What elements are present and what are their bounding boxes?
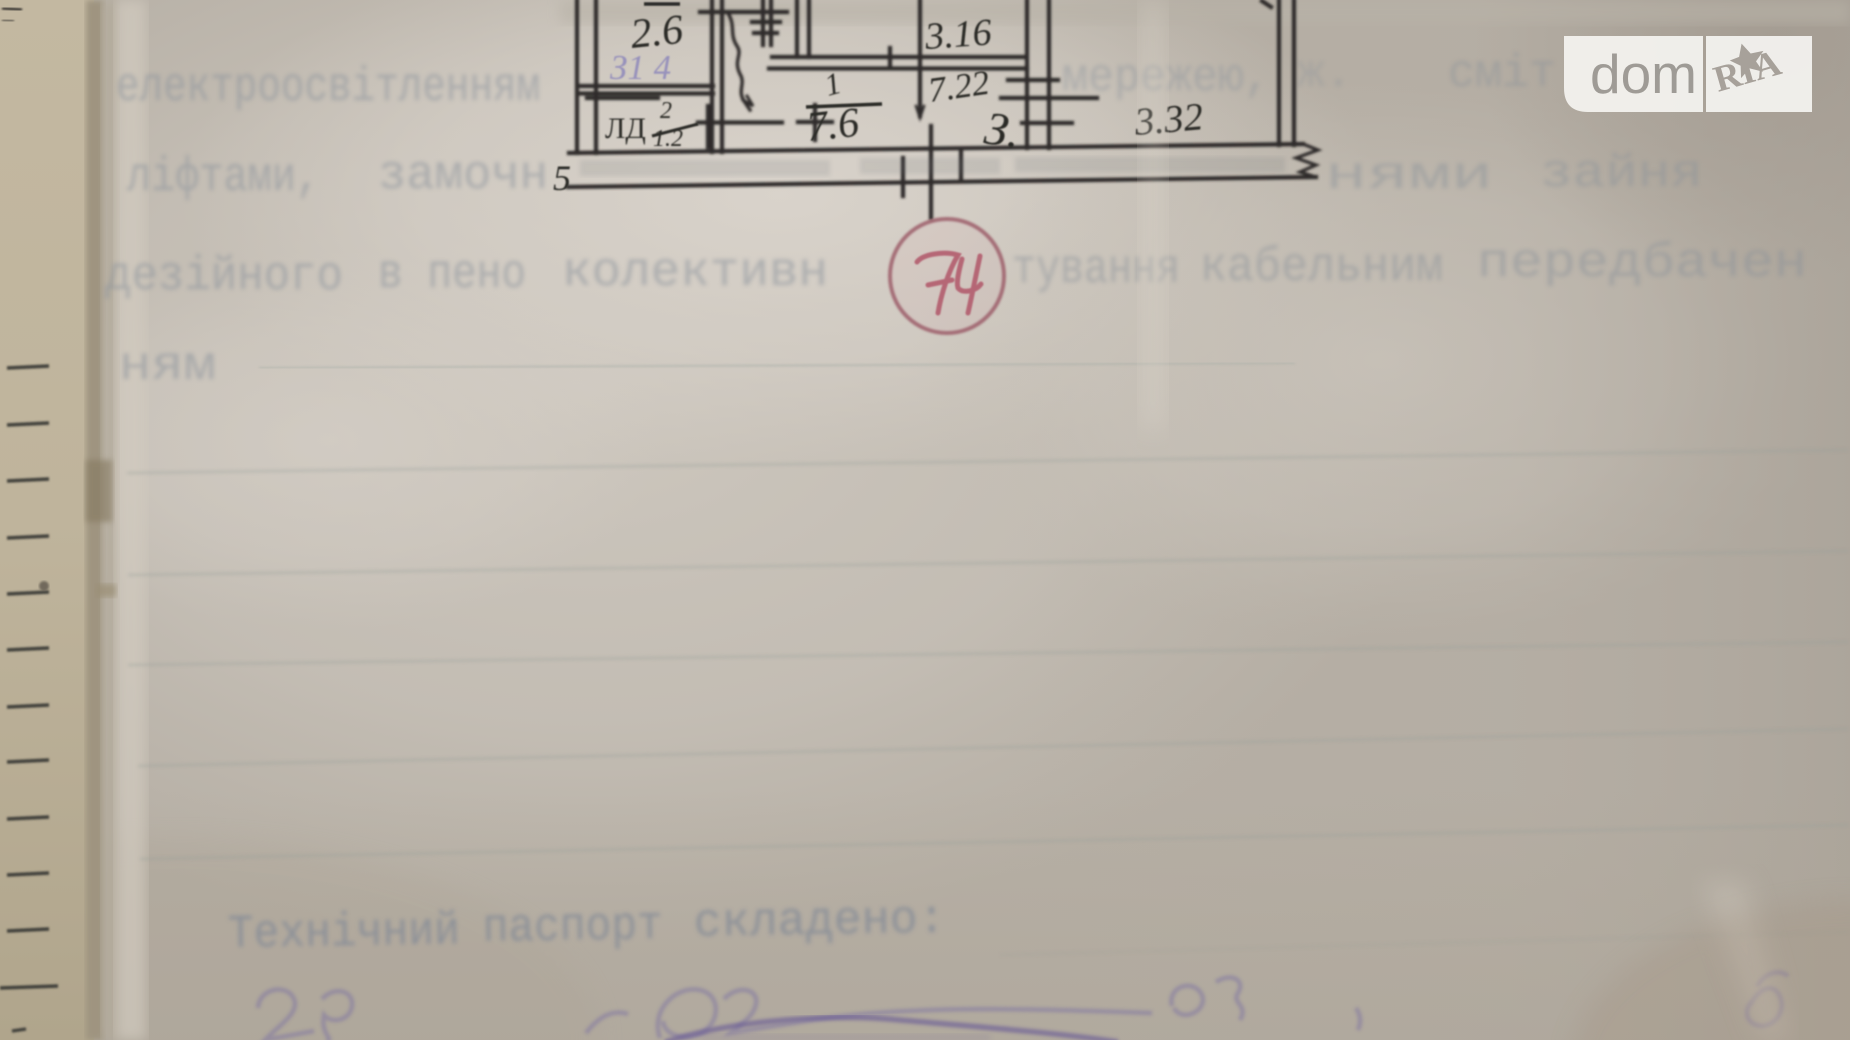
svg-text:5: 5 xyxy=(553,158,571,198)
svg-text:3.16: 3.16 xyxy=(923,11,993,58)
svg-text:паспорт: паспорт xyxy=(482,900,663,956)
svg-text:ж.: ж. xyxy=(1297,48,1352,100)
svg-text:в пено: в пено xyxy=(378,248,526,302)
svg-text:2: 2 xyxy=(660,98,672,124)
svg-text:ням: ням xyxy=(119,340,216,394)
svg-text:колективн: колективн xyxy=(562,246,828,300)
svg-text:ЛД: ЛД xyxy=(605,112,646,145)
svg-text:ліфтами,: ліфтами, xyxy=(127,151,320,205)
svg-text:dom: dom xyxy=(1590,43,1697,105)
svg-text:передбачен: передбачен xyxy=(1477,237,1807,291)
svg-text:зайня: зайня xyxy=(1540,148,1703,200)
svg-text:кабельним: кабельним xyxy=(1200,241,1443,295)
svg-text:складено:: складено: xyxy=(693,894,946,951)
svg-text:З1 4: З1 4 xyxy=(610,48,671,87)
svg-text:сміт: сміт xyxy=(1448,48,1556,100)
svg-text:Технічний: Технічний xyxy=(227,905,460,962)
svg-text:7.6: 7.6 xyxy=(804,100,861,151)
svg-text:замочн: замочн xyxy=(378,149,548,203)
svg-text:1.2: 1.2 xyxy=(653,126,683,152)
svg-text:дезійного: дезійного xyxy=(105,250,343,304)
svg-text:З.: З. xyxy=(981,102,1023,158)
svg-text:нями: нями xyxy=(1325,150,1493,202)
svg-text:електроосвітленням: електроосвітленням xyxy=(116,61,540,115)
